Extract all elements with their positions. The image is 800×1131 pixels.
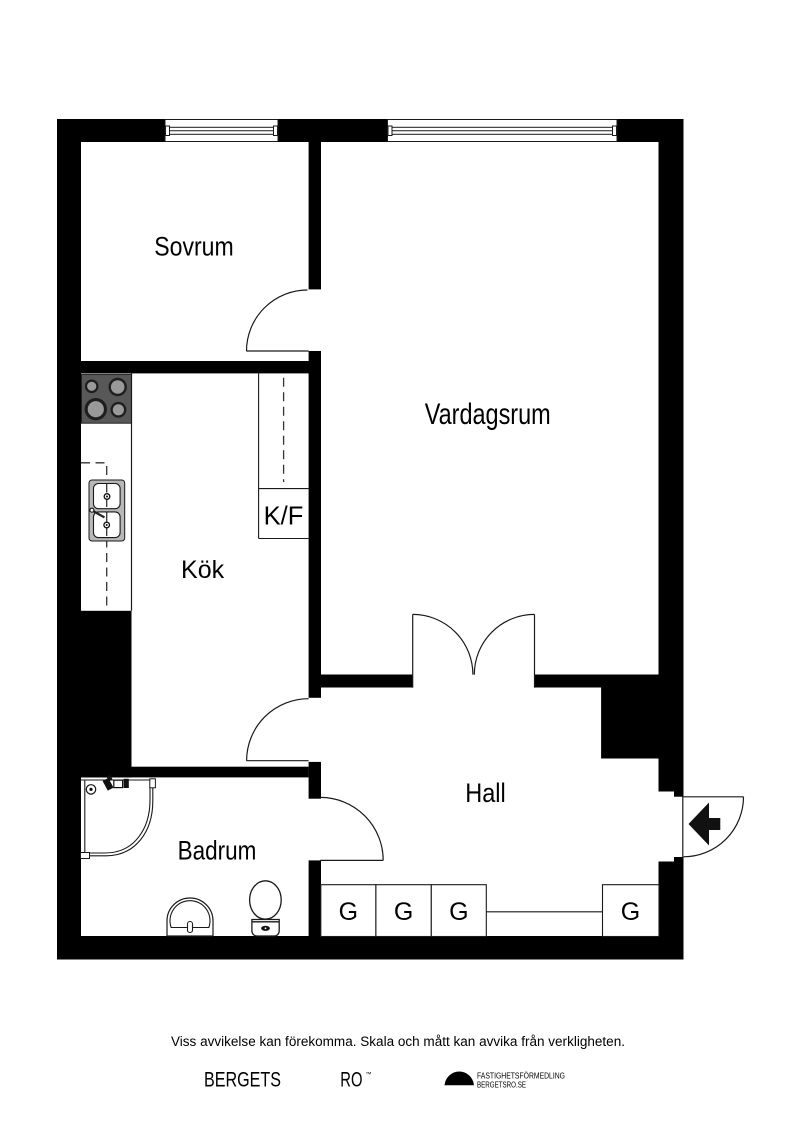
- svg-text:Kök: Kök: [181, 556, 225, 584]
- svg-text:G: G: [449, 898, 468, 926]
- svg-text:Viss avvikelse kan förekomma.: Viss avvikelse kan förekomma. Skala och …: [171, 1034, 625, 1049]
- svg-text:K/F: K/F: [264, 503, 304, 531]
- svg-text:G: G: [394, 898, 413, 926]
- svg-text:Sovrum: Sovrum: [154, 231, 233, 262]
- svg-text:BERGETSRO.SE: BERGETSRO.SE: [477, 1080, 526, 1090]
- svg-text:Hall: Hall: [465, 778, 506, 808]
- svg-text:RO: RO: [340, 1067, 362, 1091]
- svg-text:G: G: [339, 898, 358, 926]
- svg-text:Badrum: Badrum: [178, 835, 257, 865]
- svg-text:G: G: [621, 898, 640, 926]
- svg-text:Vardagsrum: Vardagsrum: [425, 399, 551, 431]
- svg-text:™: ™: [366, 1071, 372, 1078]
- svg-text:BERGETS: BERGETS: [204, 1067, 281, 1091]
